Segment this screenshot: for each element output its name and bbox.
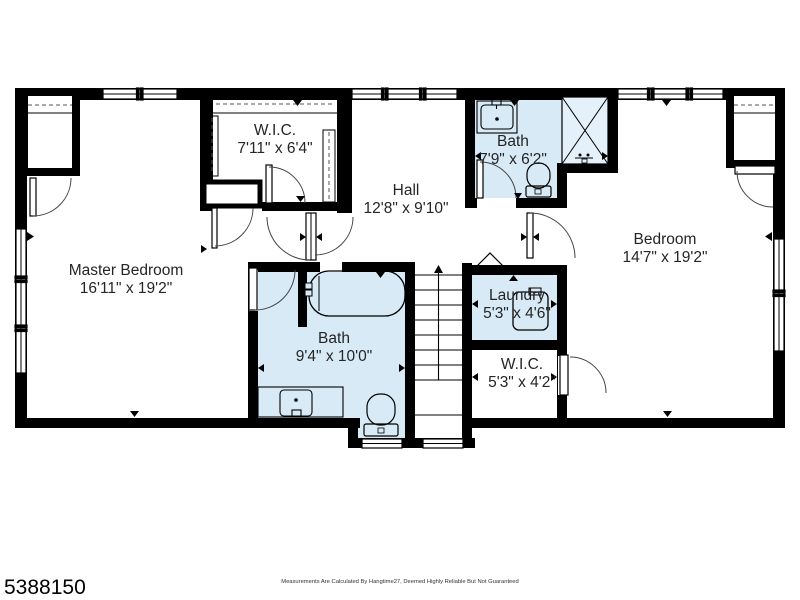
- shower-icon: [562, 97, 608, 164]
- bedroom-closet: [730, 92, 779, 164]
- room-name: Laundry: [483, 287, 551, 305]
- room-name: Bedroom: [622, 231, 707, 249]
- room-dimensions: 5'3" x 4'6": [483, 305, 551, 323]
- floor-plan-drawing: [0, 0, 800, 600]
- disclaimer-text: Measurements Are Calculated By Hangtime2…: [281, 579, 518, 585]
- room-name: Master Bedroom: [69, 262, 184, 280]
- master-closet: [24, 92, 76, 172]
- room-dimensions: 9'4" x 10'0": [296, 348, 372, 366]
- room-label-wic-lower: W.I.C. 5'3" x 4'2": [488, 356, 556, 392]
- window: [773, 239, 785, 351]
- room-name: Bath: [296, 330, 372, 348]
- window: [352, 88, 457, 100]
- room-label-bath-lower: Bath 9'4" x 10'0": [296, 330, 372, 366]
- floor-plan-page: Master Bedroom 16'11" x 19'2" W.I.C. 7'1…: [0, 0, 800, 600]
- hall-niche: [204, 182, 260, 206]
- room-label-bath-upper: Bath 7'9" x 6'2": [479, 133, 547, 169]
- stairs-icon: [415, 265, 462, 415]
- room-dimensions: 16'11" x 19'2": [69, 280, 184, 298]
- window: [423, 439, 463, 448]
- window: [618, 88, 723, 100]
- room-label-laundry: Laundry 5'3" x 4'6": [483, 287, 551, 323]
- room-name: W.I.C.: [237, 122, 312, 140]
- room-label-master-bedroom: Master Bedroom 16'11" x 19'2": [69, 262, 184, 298]
- room-dimensions: 5'3" x 4'2": [488, 374, 556, 392]
- room-name: W.I.C.: [488, 356, 556, 374]
- room-name: Bath: [479, 133, 547, 151]
- window: [362, 439, 402, 448]
- room-dimensions: 12'8" x 9'10": [363, 200, 448, 218]
- mls-number: 5388150: [4, 576, 86, 600]
- room-name: Hall: [363, 182, 448, 200]
- window: [15, 229, 27, 373]
- room-dimensions: 14'7" x 19'2": [622, 249, 707, 267]
- room-dimensions: 7'11" x 6'4": [237, 140, 312, 158]
- stair-chevron-icon: [477, 253, 503, 266]
- room-label-hall: Hall 12'8" x 9'10": [363, 182, 448, 218]
- room-label-wic-upper: W.I.C. 7'11" x 6'4": [237, 122, 312, 158]
- room-label-bedroom: Bedroom 14'7" x 19'2": [622, 231, 707, 267]
- room-dimensions: 7'9" x 6'2": [479, 151, 547, 169]
- window: [103, 88, 177, 100]
